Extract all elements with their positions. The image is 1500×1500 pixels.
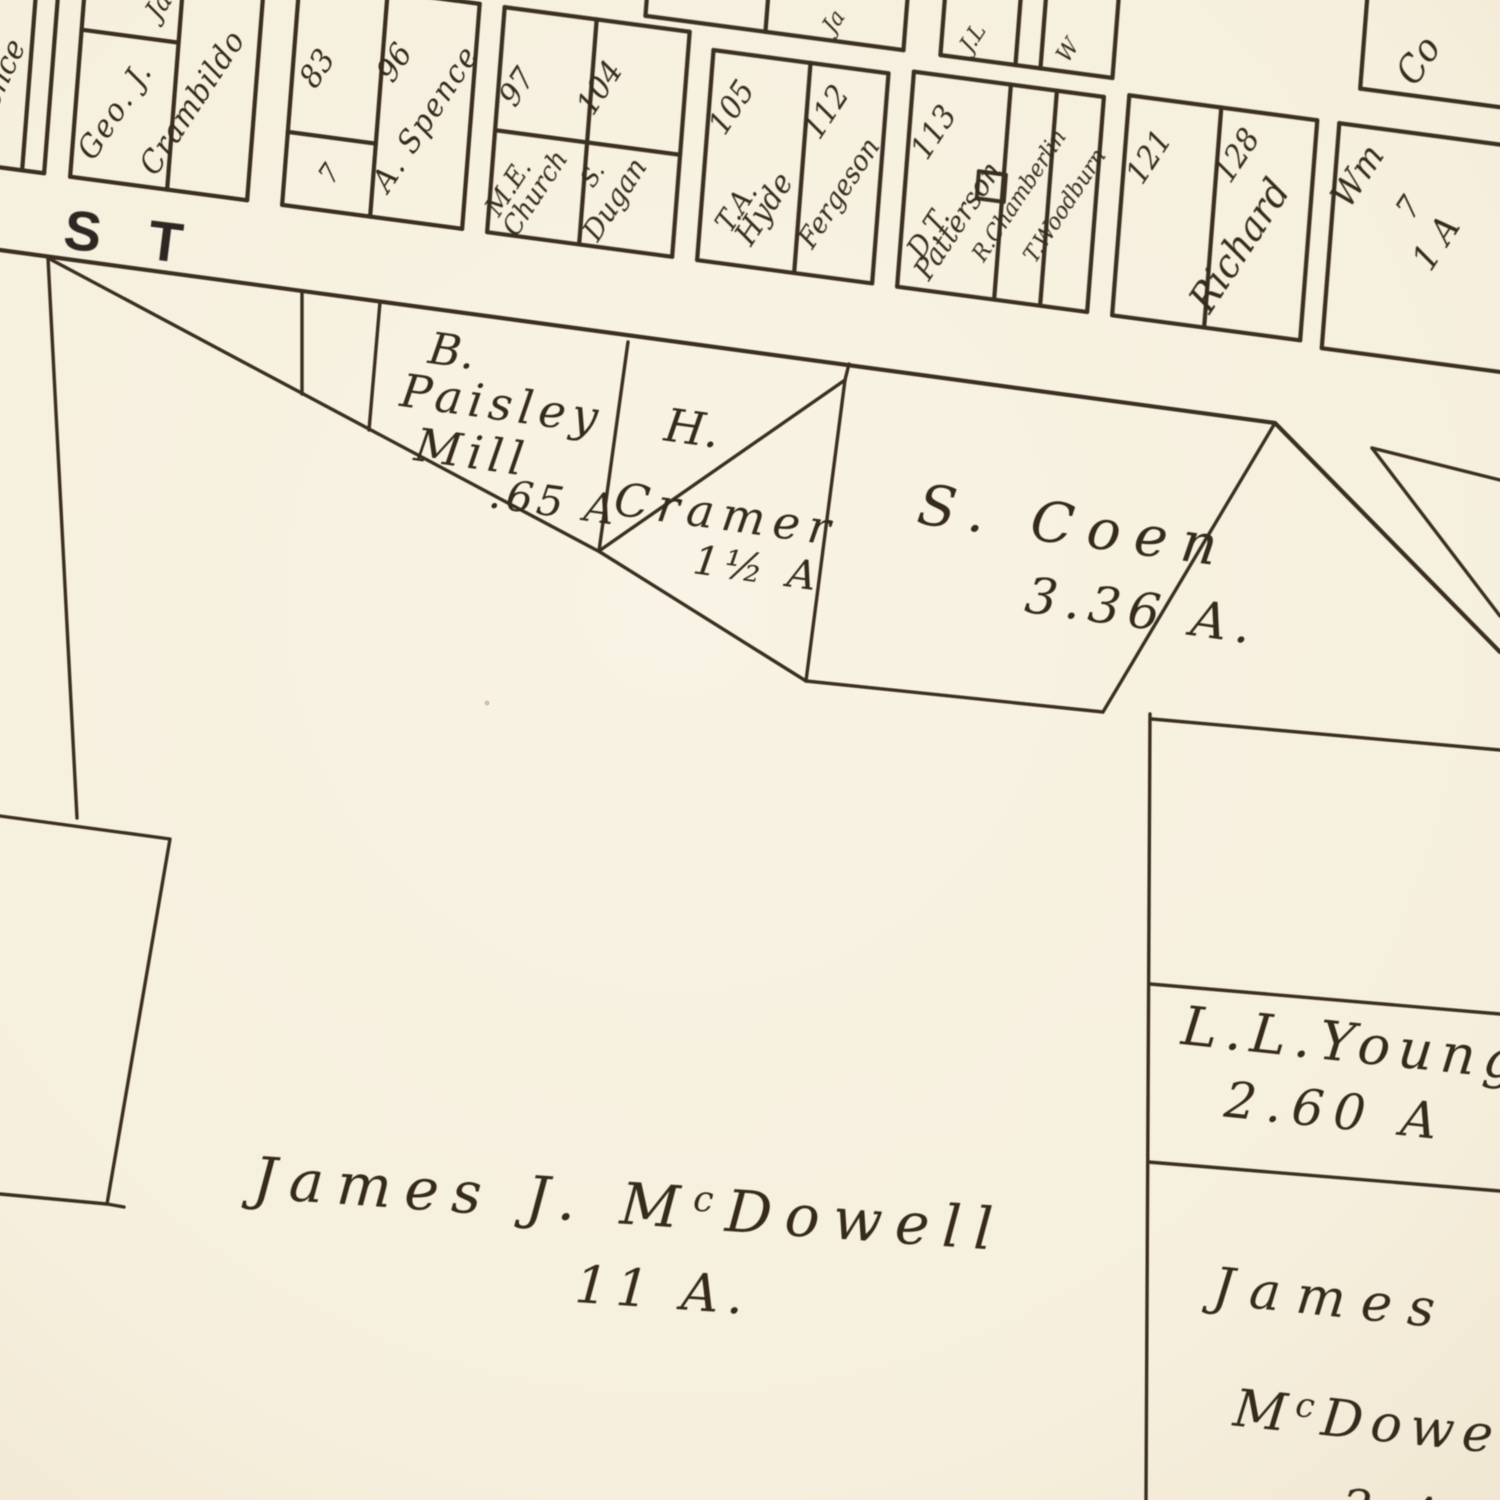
plat-map-screenshot: ence Ja Geo. J. Crambildo 83 7 96 A. Spe… [0, 0, 1500, 1500]
cramer-label-line1: H. [660, 397, 723, 458]
map-canvas: ence Ja Geo. J. Crambildo 83 7 96 A. Spe… [0, 0, 1500, 1500]
mcdowell-right-name-pre: M [1230, 1379, 1298, 1445]
mcdowell-main-name-superscript: c [692, 1179, 728, 1222]
mcdowell-right-name-superscript: c [1294, 1385, 1325, 1428]
mcdowell-main-area-label: 11 A. [573, 1255, 754, 1327]
paper-speck [485, 701, 490, 706]
